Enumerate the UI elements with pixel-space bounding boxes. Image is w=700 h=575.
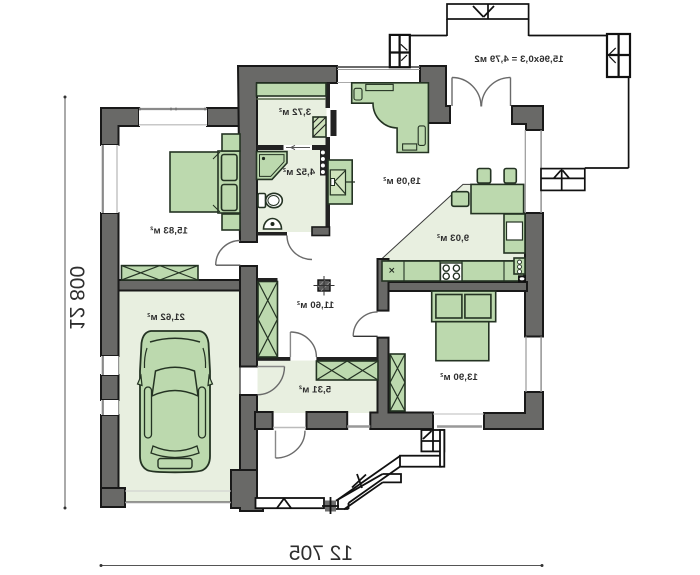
svg-text:3,72 м²: 3,72 м² xyxy=(279,107,311,118)
svg-text:5,31 м²: 5,31 м² xyxy=(299,385,331,396)
svg-text:15,83 м²: 15,83 м² xyxy=(150,226,188,237)
svg-text:4,52 м²: 4,52 м² xyxy=(283,167,315,178)
svg-text:13,90 м²: 13,90 м² xyxy=(440,372,478,383)
svg-text:19,09 м²: 19,09 м² xyxy=(383,176,421,187)
svg-text:12 800: 12 800 xyxy=(65,266,88,330)
svg-text:15,96x0,3 = 4,79 м2: 15,96x0,3 = 4,79 м2 xyxy=(474,54,563,65)
svg-text:12 705: 12 705 xyxy=(289,542,353,565)
svg-text:21,62 м²: 21,62 м² xyxy=(147,312,185,323)
svg-text:9,03 м²: 9,03 м² xyxy=(437,233,469,244)
svg-text:11,60 м²: 11,60 м² xyxy=(297,300,334,311)
